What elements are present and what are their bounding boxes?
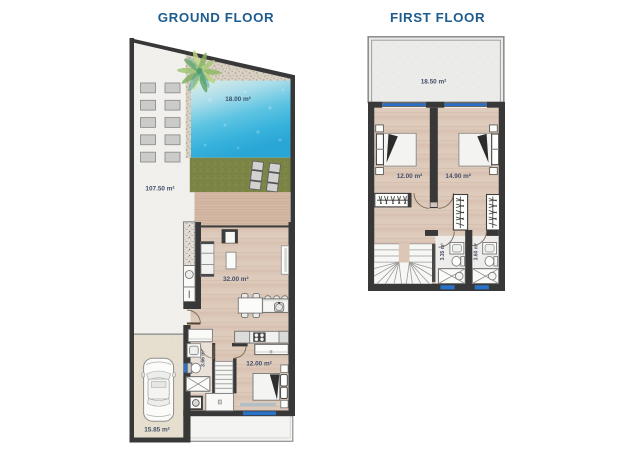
- svg-text:3.66 m²: 3.66 m²: [201, 349, 207, 367]
- svg-text:12.00 m²: 12.00 m²: [397, 173, 423, 180]
- svg-text:3.35 m²: 3.35 m²: [440, 243, 446, 261]
- svg-text:18.50 m²: 18.50 m²: [421, 79, 447, 86]
- svg-text:15.85 m²: 15.85 m²: [144, 427, 170, 434]
- svg-text:FIRST FLOOR: FIRST FLOOR: [390, 10, 485, 25]
- svg-text:3.60 m²: 3.60 m²: [473, 243, 479, 261]
- svg-text:18.00 m²: 18.00 m²: [225, 96, 251, 103]
- svg-text:GROUND FLOOR: GROUND FLOOR: [158, 10, 275, 25]
- svg-text:32.00 m²: 32.00 m²: [223, 276, 249, 283]
- svg-text:14.90 m²: 14.90 m²: [445, 173, 471, 180]
- svg-text:107.50 m²: 107.50 m²: [145, 186, 174, 193]
- svg-text:12.00 m²: 12.00 m²: [246, 360, 272, 367]
